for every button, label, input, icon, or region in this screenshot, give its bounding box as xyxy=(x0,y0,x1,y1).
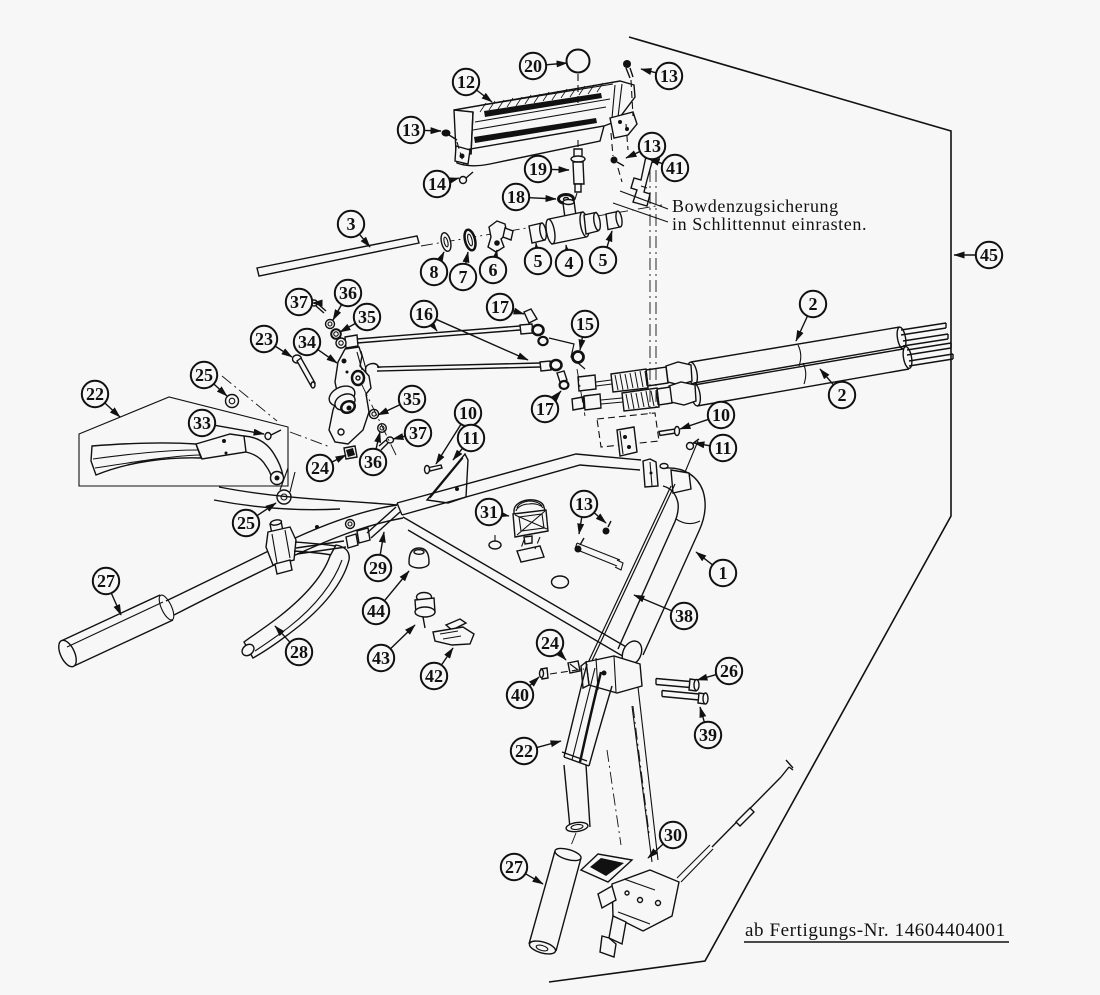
svg-text:38: 38 xyxy=(675,606,693,626)
svg-text:44: 44 xyxy=(367,601,385,621)
svg-text:17: 17 xyxy=(491,297,509,317)
svg-text:36: 36 xyxy=(364,452,382,472)
svg-text:35: 35 xyxy=(358,307,376,327)
svg-text:43: 43 xyxy=(372,648,390,668)
svg-text:25: 25 xyxy=(195,365,213,385)
svg-text:15: 15 xyxy=(576,314,594,334)
svg-text:36: 36 xyxy=(339,283,357,303)
svg-text:6: 6 xyxy=(489,260,498,280)
svg-text:7: 7 xyxy=(459,267,468,287)
svg-text:16: 16 xyxy=(415,304,433,324)
svg-text:2: 2 xyxy=(838,385,847,405)
svg-text:23: 23 xyxy=(255,329,273,349)
svg-text:24: 24 xyxy=(541,633,559,653)
svg-text:13: 13 xyxy=(643,136,661,156)
svg-text:31: 31 xyxy=(480,502,498,522)
svg-text:33: 33 xyxy=(193,413,211,433)
svg-text:4: 4 xyxy=(565,253,574,273)
svg-text:3: 3 xyxy=(347,214,356,234)
svg-text:10: 10 xyxy=(712,405,730,425)
svg-text:2: 2 xyxy=(809,294,818,314)
svg-text:in Schlittennut einrasten.: in Schlittennut einrasten. xyxy=(672,214,867,234)
svg-text:11: 11 xyxy=(714,438,731,458)
svg-text:30: 30 xyxy=(664,825,682,845)
svg-text:ab Fertigungs-Nr. 14604404001: ab Fertigungs-Nr. 14604404001 xyxy=(745,920,1006,941)
svg-text:14: 14 xyxy=(428,174,446,194)
svg-text:5: 5 xyxy=(599,250,608,270)
svg-text:Bowdenzugsicherung: Bowdenzugsicherung xyxy=(672,196,839,216)
svg-text:37: 37 xyxy=(409,423,427,443)
svg-text:8: 8 xyxy=(430,262,439,282)
svg-text:42: 42 xyxy=(425,666,443,686)
svg-text:35: 35 xyxy=(403,389,421,409)
svg-text:20: 20 xyxy=(524,56,542,76)
svg-text:13: 13 xyxy=(402,120,420,140)
svg-text:18: 18 xyxy=(507,187,525,207)
svg-text:29: 29 xyxy=(369,558,387,578)
svg-text:45: 45 xyxy=(980,245,998,265)
svg-text:5: 5 xyxy=(534,251,543,271)
svg-text:40: 40 xyxy=(511,685,529,705)
svg-text:13: 13 xyxy=(575,494,593,514)
svg-text:12: 12 xyxy=(457,72,475,92)
svg-text:22: 22 xyxy=(86,384,104,404)
svg-text:11: 11 xyxy=(462,428,479,448)
svg-text:27: 27 xyxy=(505,857,523,877)
svg-text:13: 13 xyxy=(660,66,678,86)
svg-text:1: 1 xyxy=(719,563,728,583)
svg-text:34: 34 xyxy=(298,332,316,352)
svg-text:28: 28 xyxy=(290,642,308,662)
svg-text:24: 24 xyxy=(311,458,329,478)
svg-text:17: 17 xyxy=(536,399,554,419)
svg-text:25: 25 xyxy=(237,513,255,533)
svg-text:37: 37 xyxy=(290,292,308,312)
svg-text:27: 27 xyxy=(97,571,115,591)
svg-text:39: 39 xyxy=(699,725,717,745)
svg-text:41: 41 xyxy=(666,158,684,178)
svg-text:26: 26 xyxy=(720,661,738,681)
svg-text:22: 22 xyxy=(515,741,533,761)
svg-text:19: 19 xyxy=(529,159,547,179)
svg-text:10: 10 xyxy=(459,403,477,423)
